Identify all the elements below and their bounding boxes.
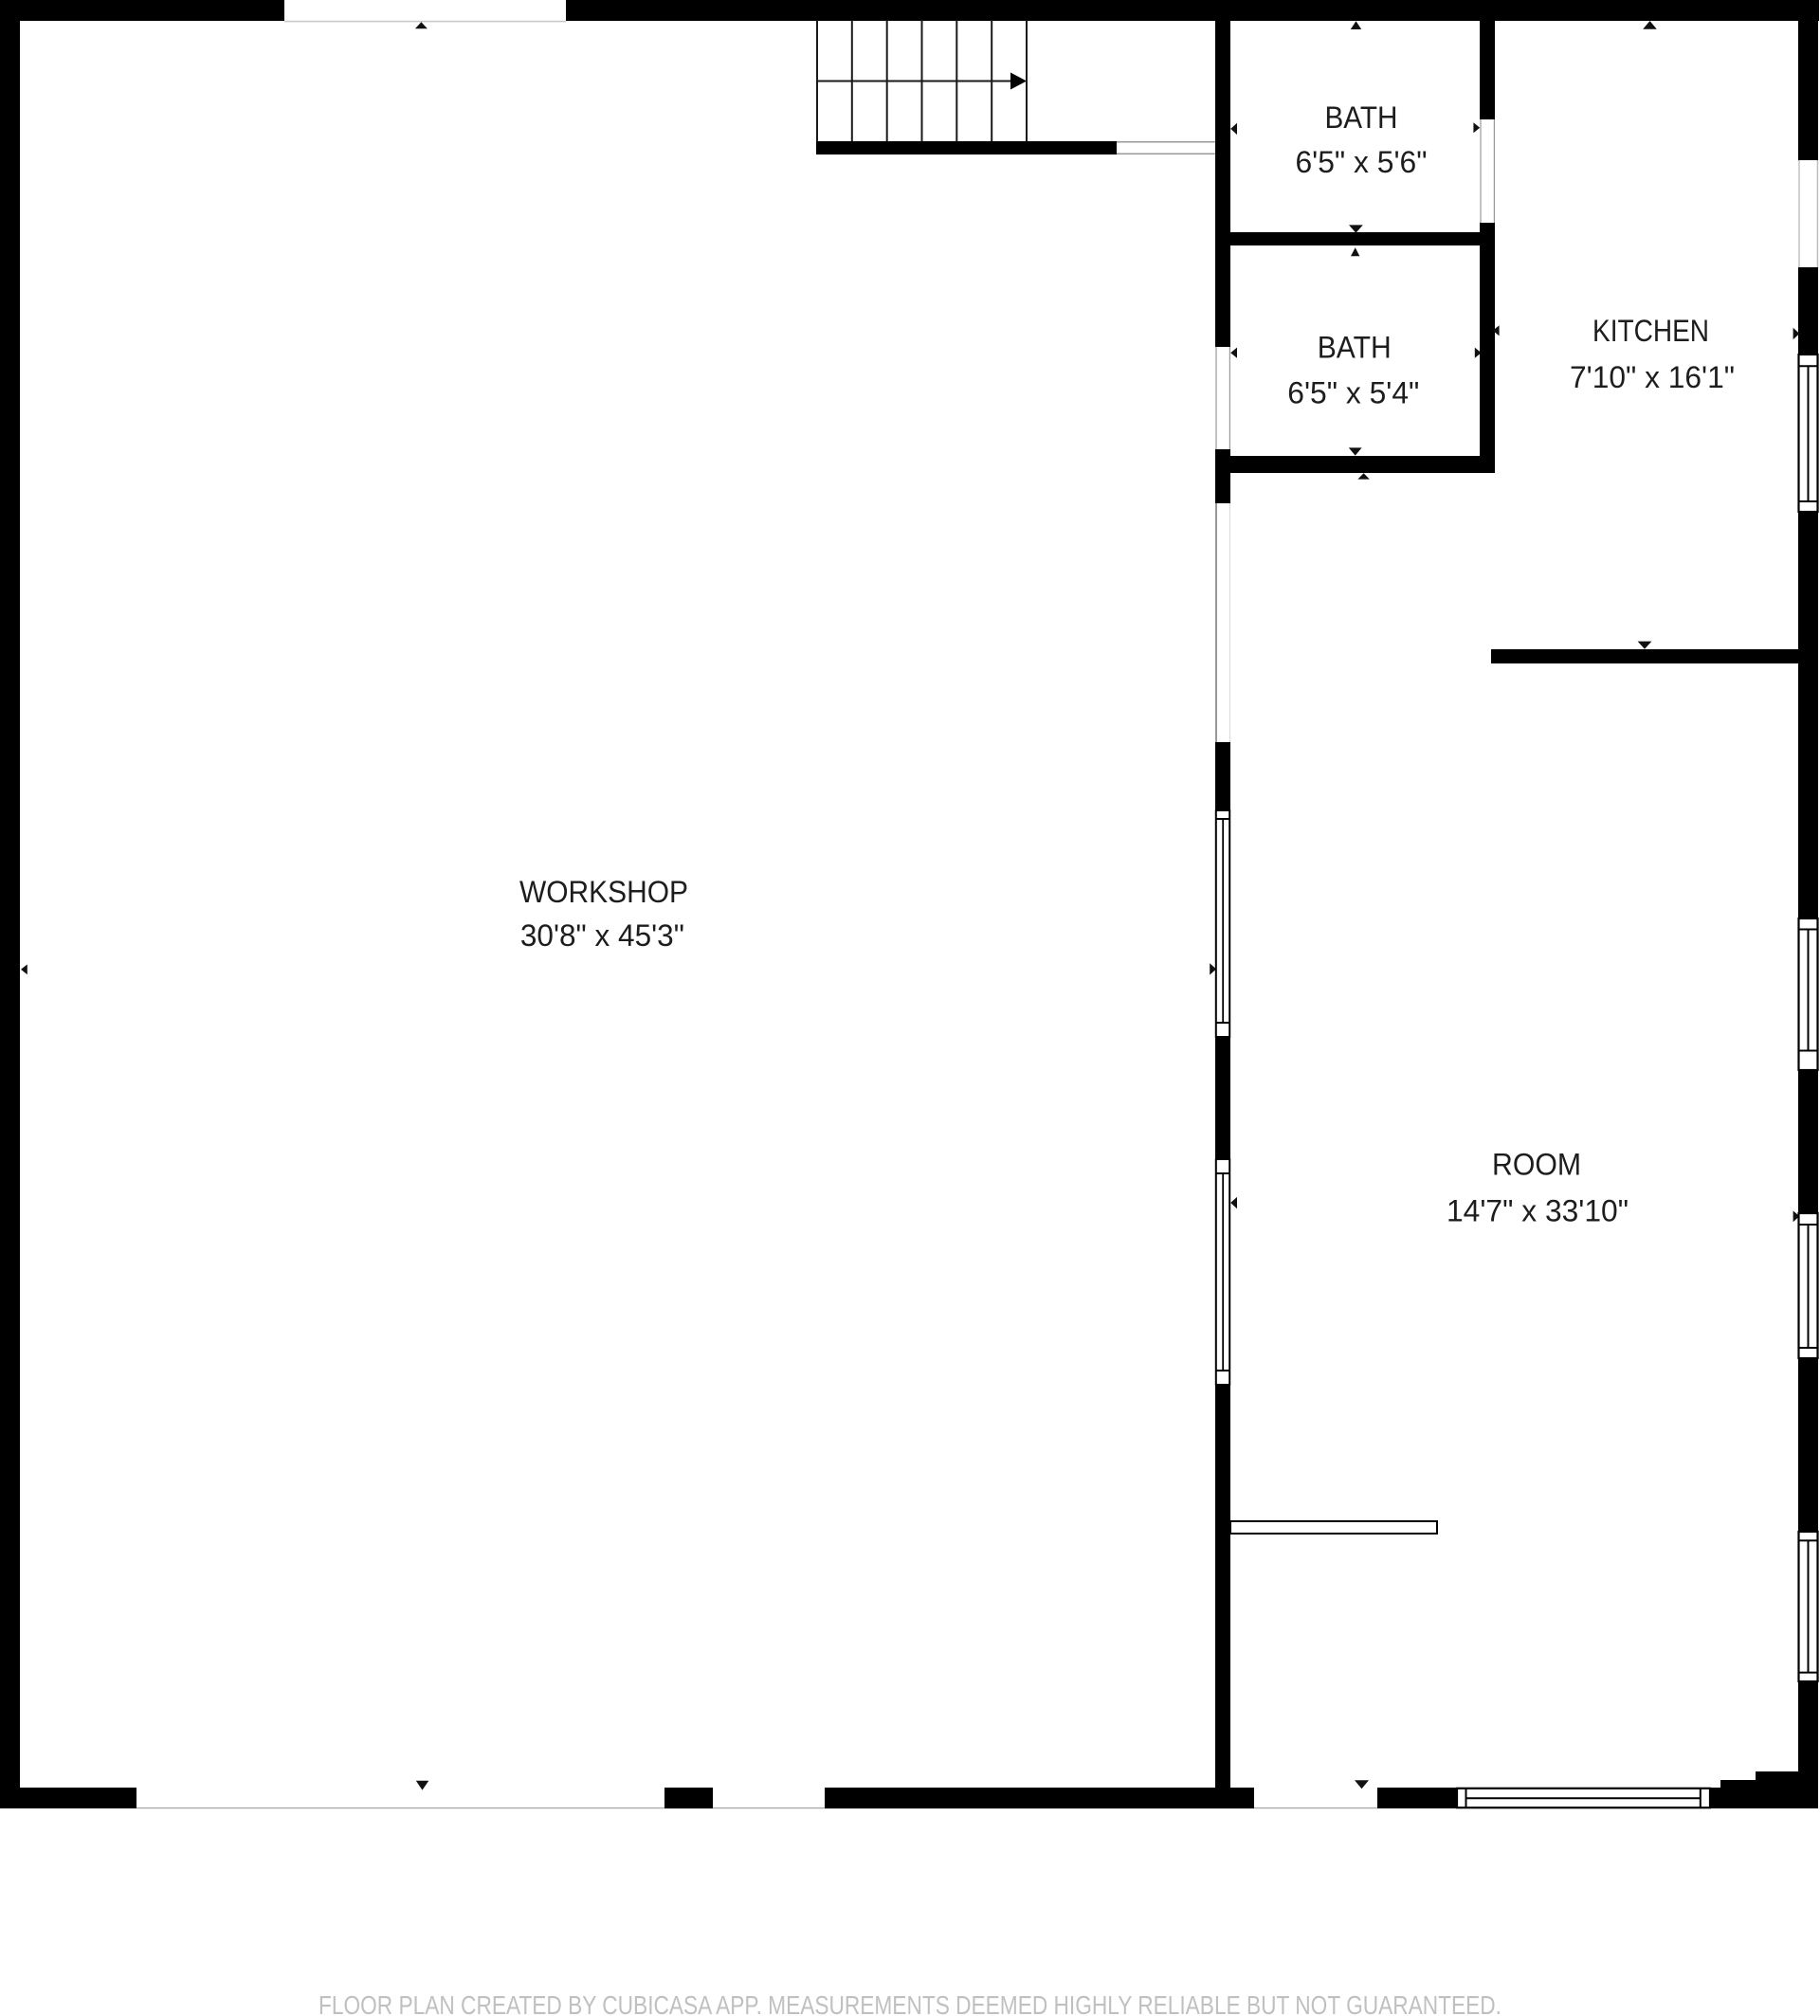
svg-text:BATH: BATH — [1318, 331, 1392, 365]
svg-text:6'5" x 5'6": 6'5" x 5'6" — [1296, 145, 1428, 179]
svg-text:30'8" x 45'3": 30'8" x 45'3" — [520, 918, 684, 953]
svg-text:BATH: BATH — [1325, 100, 1398, 135]
svg-text:6'5" x 5'4": 6'5" x 5'4" — [1287, 376, 1419, 410]
svg-text:7'10" x 16'1": 7'10" x 16'1" — [1570, 360, 1735, 394]
svg-text:KITCHEN: KITCHEN — [1592, 314, 1709, 348]
svg-text:FLOOR PLAN CREATED BY CUBICASA: FLOOR PLAN CREATED BY CUBICASA APP. MEAS… — [318, 1990, 1501, 2016]
svg-text:WORKSHOP: WORKSHOP — [519, 875, 688, 909]
svg-text:ROOM: ROOM — [1492, 1148, 1581, 1182]
svg-text:14'7" x 33'10": 14'7" x 33'10" — [1447, 1194, 1629, 1228]
